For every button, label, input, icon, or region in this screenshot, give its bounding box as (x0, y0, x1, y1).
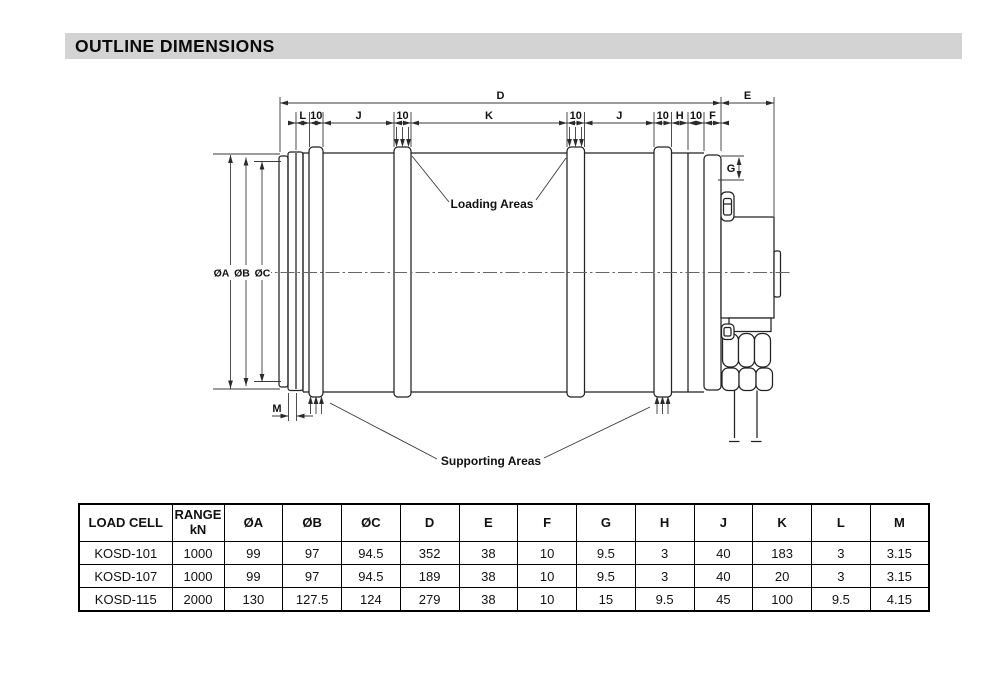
cell-dim-d: 279 (400, 588, 459, 612)
cell-dim-e: 38 (459, 588, 518, 612)
dim-label-k: K (485, 110, 493, 122)
cable (729, 391, 762, 442)
col-header-dim-h: H (635, 504, 694, 542)
dim-label-10-2: 10 (396, 110, 408, 122)
cell-dim-h: 3 (635, 565, 694, 588)
col-header-dim-m: M (870, 504, 929, 542)
col-header-load-cell: LOAD CELL (79, 504, 172, 542)
col-header-dim-j: J (694, 504, 753, 542)
col-header-dim-e: E (459, 504, 518, 542)
cell-dim-m: 3.15 (870, 542, 929, 565)
dimension-lines (213, 97, 774, 459)
col-header-dim-k: K (753, 504, 812, 542)
dim-label-dia-b: ØB (234, 268, 250, 280)
cell-dim-l: 3 (812, 542, 871, 565)
cell-model: KOSD-107 (79, 565, 172, 588)
cell-range: 2000 (172, 588, 224, 612)
cell-dim-e: 38 (459, 542, 518, 565)
load-cell-outline-drawing: D E L 10 J 10 K 10 J 10 H 10 F G M ØA ØB… (0, 0, 992, 498)
dim-label-10-3: 10 (570, 110, 582, 122)
cell-dim-f: 10 (518, 542, 577, 565)
dim-label-j-2: J (616, 110, 622, 122)
dim-label-dia-a: ØA (214, 268, 230, 280)
table-row-kosd-107: KOSD-1071000999794.518938109.53402033.15 (79, 565, 929, 588)
cell-dim-d: 189 (400, 565, 459, 588)
cell-dim-øb: 127.5 (283, 588, 342, 612)
col-header-dim-f: F (518, 504, 577, 542)
cell-dim-øb: 97 (283, 542, 342, 565)
col-header-dim-g: G (577, 504, 636, 542)
cell-dim-m: 4.15 (870, 588, 929, 612)
cell-dim-d: 352 (400, 542, 459, 565)
cell-dim-j: 40 (694, 542, 753, 565)
table-row-kosd-101: KOSD-1011000999794.535238109.534018333.1… (79, 542, 929, 565)
col-header-range: RANGEkN (172, 504, 224, 542)
cell-dim-g: 9.5 (577, 542, 636, 565)
dim-label-10-4: 10 (657, 110, 669, 122)
cell-dim-j: 45 (694, 588, 753, 612)
dim-label-dia-c: ØC (255, 268, 271, 280)
supporting-areas-label: Supporting Areas (441, 454, 542, 468)
table-row-kosd-115: KOSD-1152000130127.51242793810159.545100… (79, 588, 929, 612)
cable-gland (722, 318, 773, 391)
dim-label-h: H (676, 110, 684, 122)
cell-range: 1000 (172, 542, 224, 565)
dim-label-d: D (497, 90, 505, 102)
cell-dim-l: 3 (812, 565, 871, 588)
cell-dim-g: 15 (577, 588, 636, 612)
cell-dim-øa: 99 (224, 565, 283, 588)
load-cell-body (279, 147, 781, 442)
dim-label-j-1: J (355, 110, 361, 122)
dimension-table: LOAD CELLRANGEkNØAØBØCDEFGHJKLM KOSD-101… (78, 503, 930, 612)
col-header-dim-øa: ØA (224, 504, 283, 542)
cell-dim-k: 20 (753, 565, 812, 588)
dim-label-g: G (727, 163, 736, 175)
cell-model: KOSD-115 (79, 588, 172, 612)
connector-housing (721, 192, 781, 318)
dim-label-10-5: 10 (690, 110, 702, 122)
col-header-dim-øb: ØB (283, 504, 342, 542)
datasheet-page: OUTLINE DIMENSIONS (0, 0, 992, 684)
cell-dim-h: 3 (635, 542, 694, 565)
cell-dim-øb: 97 (283, 565, 342, 588)
table-header-row: LOAD CELLRANGEkNØAØBØCDEFGHJKLM (79, 504, 929, 542)
cell-dim-øa: 99 (224, 542, 283, 565)
cell-dim-f: 10 (518, 588, 577, 612)
dim-label-m: M (272, 403, 281, 415)
cell-dim-øc: 124 (342, 588, 401, 612)
col-header-dim-d: D (400, 504, 459, 542)
cell-dim-m: 3.15 (870, 565, 929, 588)
range-unit-line1: RANGE (173, 508, 224, 523)
cell-dim-f: 10 (518, 565, 577, 588)
loading-areas-label: Loading Areas (451, 197, 534, 211)
range-unit-line2: kN (173, 523, 224, 538)
dim-label-f: F (709, 110, 716, 122)
cell-dim-j: 40 (694, 565, 753, 588)
cell-dim-h: 9.5 (635, 588, 694, 612)
cell-dim-g: 9.5 (577, 565, 636, 588)
cell-dim-k: 100 (753, 588, 812, 612)
cell-dim-l: 9.5 (812, 588, 871, 612)
dim-label-e: E (744, 90, 751, 102)
col-header-dim-øc: ØC (342, 504, 401, 542)
cell-dim-øa: 130 (224, 588, 283, 612)
cell-dim-e: 38 (459, 565, 518, 588)
dim-label-10-1: 10 (310, 110, 322, 122)
cell-dim-k: 183 (753, 542, 812, 565)
cell-range: 1000 (172, 565, 224, 588)
dim-label-l: L (299, 110, 306, 122)
cell-dim-øc: 94.5 (342, 542, 401, 565)
col-header-dim-l: L (812, 504, 871, 542)
cell-model: KOSD-101 (79, 542, 172, 565)
cell-dim-øc: 94.5 (342, 565, 401, 588)
